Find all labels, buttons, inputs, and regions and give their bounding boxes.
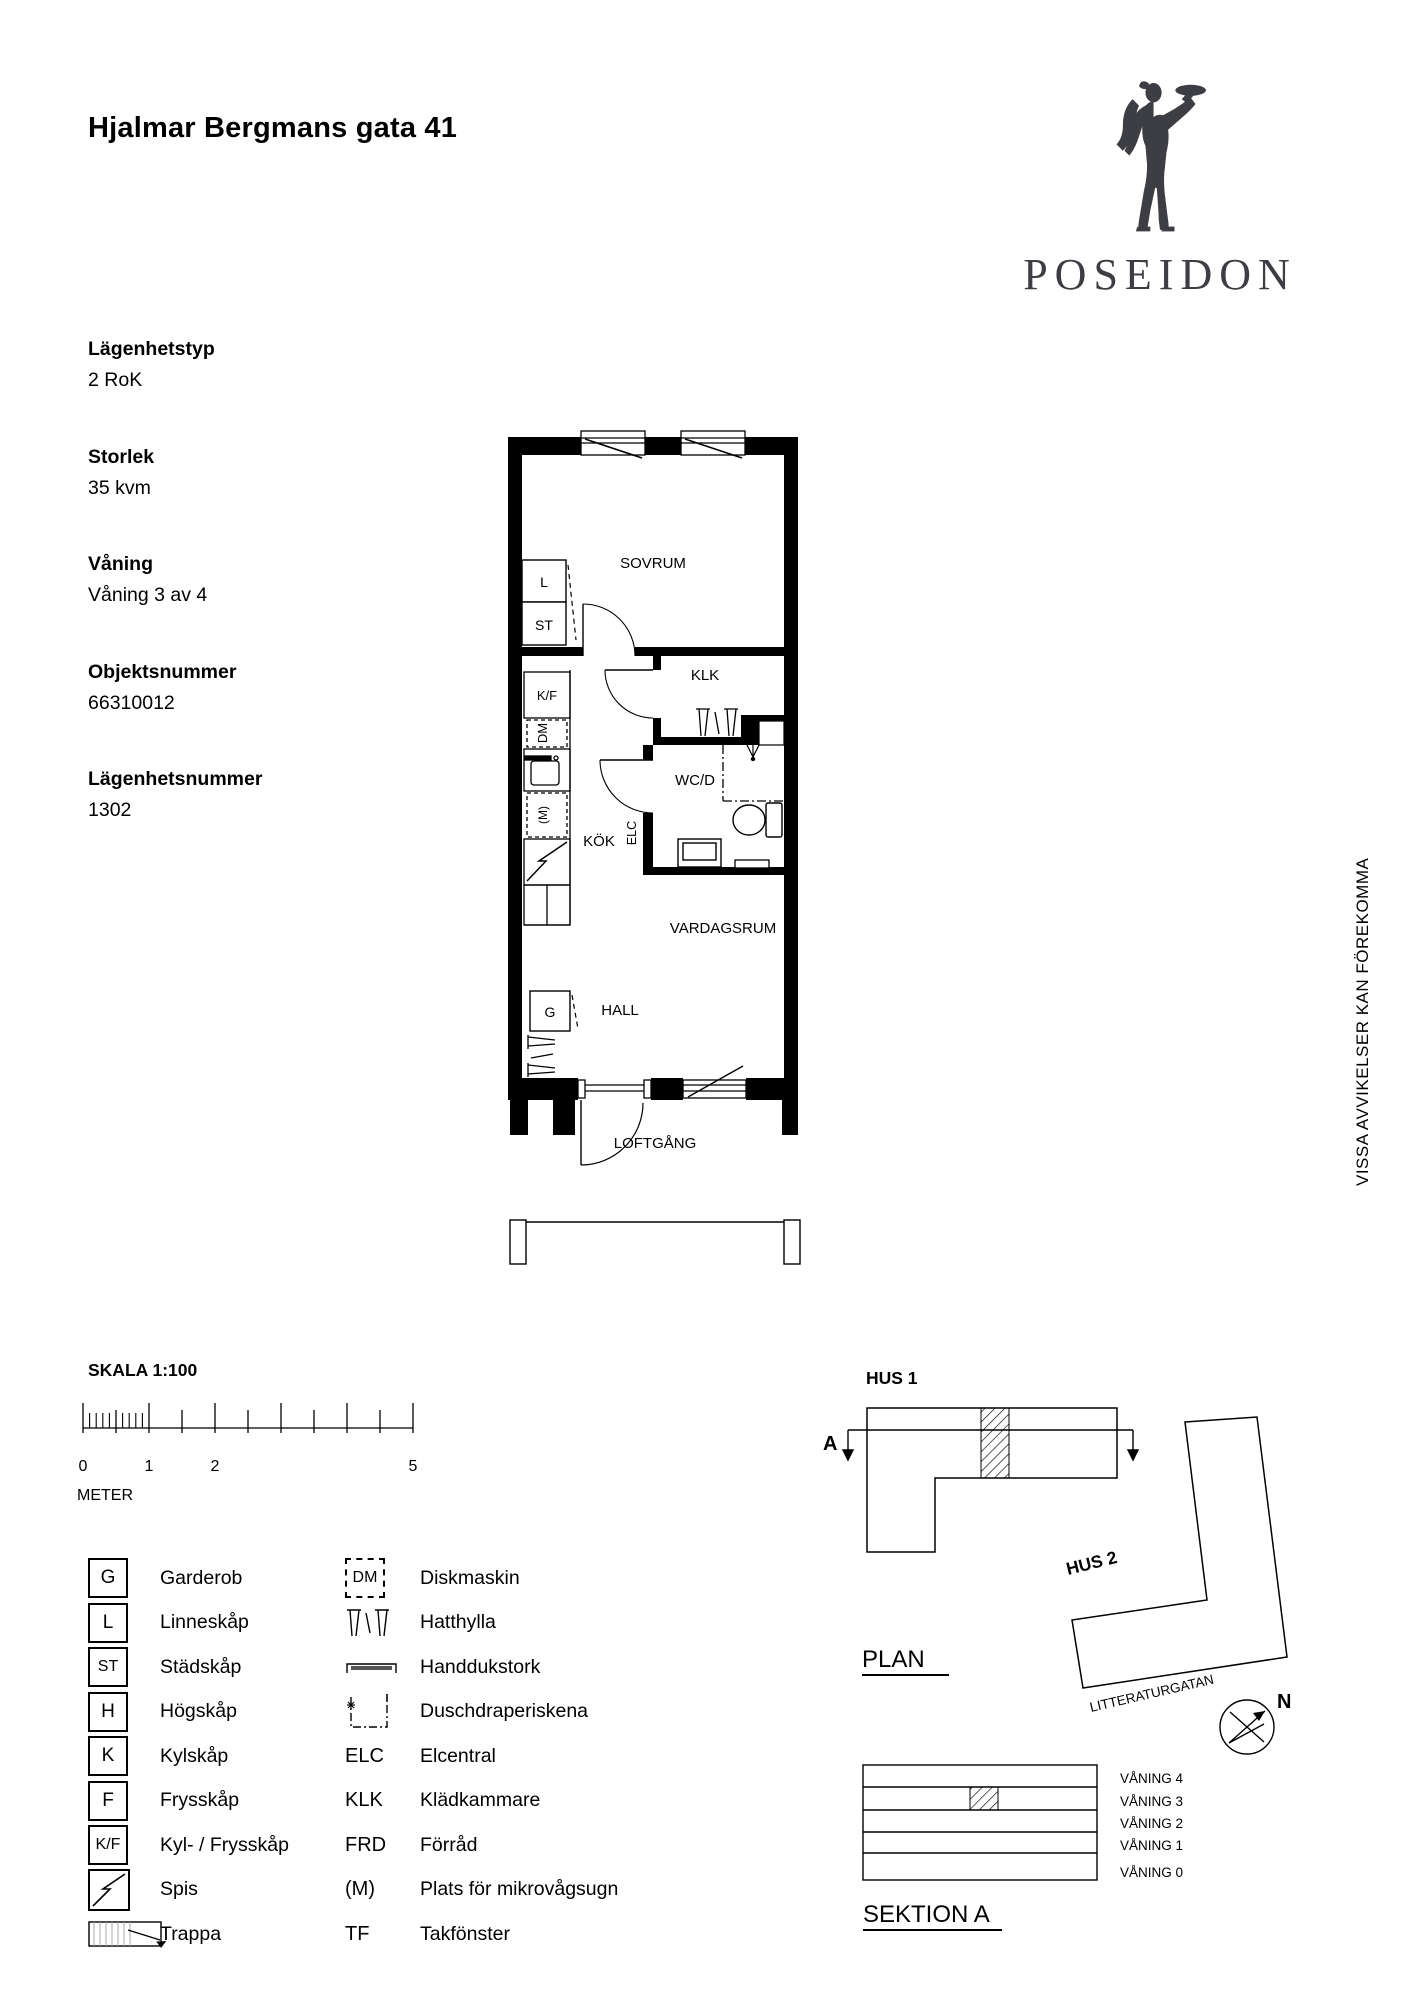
info-apartment-type: Lägenhetstyp 2 RoK [88, 340, 388, 390]
info-label: Lägenhetstyp [88, 340, 388, 360]
legend-item: K Kylskåp [88, 1734, 343, 1779]
info-label: Våning [88, 555, 388, 575]
room-label-vardagsrum: VARDAGSRUM [670, 920, 776, 937]
floor-label-4: VÅNING 4 [1120, 1771, 1184, 1786]
takfonster-code: TF [345, 1923, 420, 1946]
marker-m: (M) [536, 806, 550, 824]
floorplan-drawing: L ST K/F DM (M) ELC [498, 425, 818, 1285]
info-value: 66310012 [88, 694, 388, 714]
legend-right-column: DM Diskmaskin Hatthylla Handdukstork [345, 1556, 675, 1957]
siteplan-and-section: HUS 1 A HUS 2 PLAN LITTERATURGATAN N VÅN… [815, 1360, 1315, 1945]
north-label: N [1277, 1691, 1291, 1713]
legend-item: ST Städskåp [88, 1645, 343, 1690]
elcentral-code: ELC [345, 1745, 420, 1768]
room-label-hall: HALL [601, 1002, 639, 1019]
room-label-klk: KLK [691, 667, 719, 684]
room-label-wcd: WC/D [675, 772, 715, 789]
info-value: 1302 [88, 801, 388, 821]
linneskap-icon: L [88, 1603, 128, 1643]
room-label-kok: KÖK [583, 832, 615, 850]
scale-ruler: 0 1 2 5 METER [75, 1395, 445, 1510]
trappa-icon [88, 1915, 168, 1953]
legend-item: DM Diskmaskin [345, 1556, 675, 1601]
room-label-loftgang: LOFTGÅNG [614, 1135, 697, 1152]
legend-item: K/F Kyl- / Frysskåp [88, 1823, 343, 1868]
info-object-number: Objektsnummer 66310012 [88, 663, 388, 713]
legend-item: FRD Förråd [345, 1823, 675, 1868]
legend-item: G Garderob [88, 1556, 343, 1601]
mikrovagsugn-code: (M) [345, 1878, 420, 1901]
legend-left-column: G Garderob L Linneskåp ST Städskåp H Hög… [88, 1556, 343, 1957]
loftgang-railing [510, 1220, 800, 1264]
legend-item: (M) Plats för mikrovågsugn [345, 1868, 675, 1913]
section-diagram [863, 1765, 1097, 1880]
vardagsrum-window [683, 1066, 746, 1098]
scale-tick-2: 2 [211, 1458, 220, 1475]
scale-tick-1: 1 [145, 1458, 154, 1475]
sovrum-window-1 [581, 431, 645, 458]
legend-item: Spis [88, 1868, 343, 1913]
kitchen-counter [524, 670, 570, 925]
forrad-code: FRD [345, 1834, 420, 1857]
interior-walls [522, 647, 784, 875]
hus1-label: HUS 1 [866, 1368, 918, 1388]
kladkammare-code: KLK [345, 1789, 420, 1812]
plan-label: PLAN [862, 1646, 925, 1673]
toilet [733, 803, 782, 837]
legend-item: L Linneskåp [88, 1601, 343, 1646]
hall-hatthylla-symbol [528, 1035, 555, 1077]
stadskap-icon: ST [88, 1647, 128, 1687]
info-label: Objektsnummer [88, 663, 388, 683]
floor-label-2: VÅNING 2 [1120, 1816, 1183, 1831]
shower-head-symbol [747, 743, 759, 761]
info-label: Lägenhetsnummer [88, 770, 388, 790]
apartment-floor-hatch [970, 1787, 998, 1810]
legend-item: Hatthylla [345, 1601, 675, 1646]
sovrum-window-2 [681, 431, 745, 458]
floor-label-0: VÅNING 0 [1120, 1865, 1183, 1880]
floor-label-1: VÅNING 1 [1120, 1838, 1183, 1853]
garderob-icon: G [88, 1558, 128, 1598]
hogskap-icon: H [88, 1692, 128, 1732]
handdukstork-icon [345, 1657, 399, 1677]
poseidon-statue-icon [1110, 70, 1210, 238]
frysskap-icon: F [88, 1781, 128, 1821]
hatthylla-icon [345, 1607, 395, 1639]
legend-item: Handdukstork [345, 1645, 675, 1690]
scale-tick-0: 0 [79, 1458, 88, 1475]
legend-item: Duschdraperiskena [345, 1690, 675, 1735]
marker-l: L [540, 574, 548, 590]
diskmaskin-icon: DM [345, 1558, 385, 1598]
handdukstork-fixture [735, 860, 769, 868]
info-label: Storlek [88, 448, 388, 468]
compass-north [1220, 1700, 1274, 1754]
spis-icon [88, 1869, 130, 1911]
apartment-location-hatch [981, 1408, 1009, 1478]
info-size: Storlek 35 kvm [88, 448, 388, 498]
hus2-label: HUS 2 [1064, 1547, 1119, 1579]
legend-item: KLK Klädkammare [345, 1779, 675, 1824]
sektion-a-label: SEKTION A [863, 1901, 990, 1928]
scale-tick-5: 5 [409, 1458, 418, 1475]
section-letter-label: A [823, 1433, 837, 1455]
legend-item: TF Takfönster [345, 1912, 675, 1957]
marker-elc: ELC [625, 821, 639, 845]
entrance-door [578, 1080, 651, 1165]
legend-item: F Frysskåp [88, 1779, 343, 1824]
disclaimer-text: VISSA AVVIKELSER KAN FÖREKOMMA [1344, 852, 1382, 1192]
floorplan-document-page: { "header": { "title": "Hjalmar Bergmans… [0, 0, 1413, 2000]
floor-label-3: VÅNING 3 [1120, 1794, 1183, 1809]
klk-hatthylla-symbol [696, 709, 738, 736]
info-floor: Våning Våning 3 av 4 [88, 555, 388, 605]
poseidon-logo: POSEIDON [1000, 70, 1320, 300]
info-value: 2 RoK [88, 371, 388, 391]
kyl-frysskap-icon: K/F [88, 1825, 128, 1865]
washing-machine [678, 839, 721, 867]
info-value: Våning 3 av 4 [88, 586, 388, 606]
legend-item: Trappa [88, 1912, 343, 1957]
room-label-sovrum: SOVRUM [620, 555, 686, 572]
marker-g: G [545, 1004, 556, 1020]
scale-unit: METER [77, 1487, 133, 1504]
sovrum-door [583, 604, 635, 656]
scale-title: SKALA 1:100 [88, 1360, 197, 1381]
neighbor-space [759, 721, 784, 745]
legend-item: ELC Elcentral [345, 1734, 675, 1779]
info-apartment-number: Lägenhetsnummer 1302 [88, 770, 388, 820]
marker-st: ST [535, 617, 553, 633]
legend-item: H Högskåp [88, 1690, 343, 1735]
marker-dm: DM [535, 723, 550, 743]
wcd-door [600, 760, 653, 813]
info-value: 35 kvm [88, 479, 388, 499]
kylskap-icon: K [88, 1736, 128, 1776]
poseidon-brand-text: POSEIDON [1000, 249, 1320, 300]
page-title: Hjalmar Bergmans gata 41 [88, 112, 457, 145]
klk-door [605, 670, 653, 718]
marker-kf: K/F [537, 688, 557, 703]
duschdraperiskena-icon [345, 1691, 393, 1733]
